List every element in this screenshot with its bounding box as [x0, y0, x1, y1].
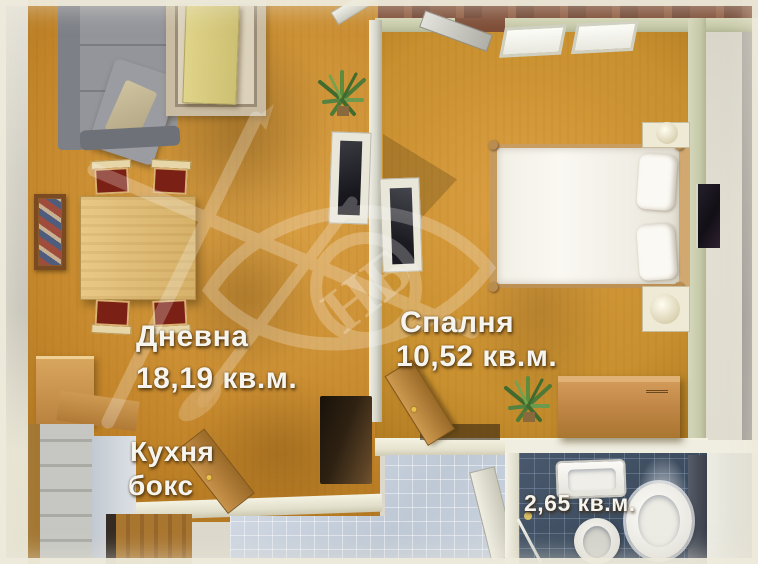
potted-plant-bedroom — [498, 372, 558, 428]
wall-picture-living — [34, 194, 66, 270]
toilet — [574, 518, 620, 564]
potted-plant-living — [312, 66, 372, 122]
door-handle — [205, 474, 212, 481]
chair-seat — [95, 299, 130, 327]
living-room-label: Дневна — [136, 320, 248, 354]
dining-chair — [149, 167, 191, 203]
window-pane — [571, 21, 639, 55]
bathroom-left-wall — [505, 453, 519, 564]
bedroom-area: 10,52 кв.м. — [396, 340, 557, 374]
entry-door — [116, 514, 192, 564]
tub-basin — [638, 495, 680, 547]
bedroom-label: Спалня — [400, 306, 514, 340]
dining-table — [80, 196, 196, 300]
door-handle — [411, 406, 418, 413]
pillow — [636, 153, 678, 212]
bed-headboard — [678, 146, 690, 288]
bathroom-right-wall — [707, 453, 758, 564]
bedside-lamp — [656, 122, 678, 144]
kitchen-label-line2: бокс — [128, 470, 194, 502]
kitchen-tall-cabinet — [40, 424, 94, 564]
living-room-area: 18,19 кв.м. — [136, 362, 297, 396]
chair-seat — [153, 167, 188, 195]
bathroom-top-wall — [505, 440, 758, 454]
bed-post — [488, 140, 498, 150]
dresser — [558, 376, 680, 438]
bed-post — [488, 282, 498, 292]
tv-screen — [390, 188, 415, 265]
bathroom-area: 2,65 кв.м. — [524, 490, 636, 517]
kitchen-label-line1: Кухня — [130, 436, 214, 468]
window-pane — [499, 24, 567, 58]
daybed-lounger — [182, 3, 239, 105]
floor-plan-render: НБ Дневна 18,19 кв.м. Кухня бокс Спалня … — [0, 0, 758, 564]
pillow — [636, 223, 678, 282]
tv-panel-bedroom — [379, 177, 422, 272]
tv-panel-living — [328, 131, 371, 224]
sink-basin — [568, 468, 617, 492]
wall-picture-bedroom — [696, 184, 720, 248]
tv-screen — [338, 141, 363, 216]
refrigerator — [320, 396, 372, 484]
dresser-handle — [646, 390, 668, 396]
dining-chair — [91, 299, 133, 335]
sofa-cushion-seam — [80, 44, 178, 46]
shower-dark-wall — [688, 455, 707, 564]
bedside-lamp — [650, 294, 680, 324]
toilet-seat — [583, 526, 611, 558]
chair-seat — [94, 167, 129, 195]
picture-artwork — [39, 199, 61, 265]
exterior-wall-left — [0, 0, 30, 564]
dining-chair — [91, 167, 133, 203]
